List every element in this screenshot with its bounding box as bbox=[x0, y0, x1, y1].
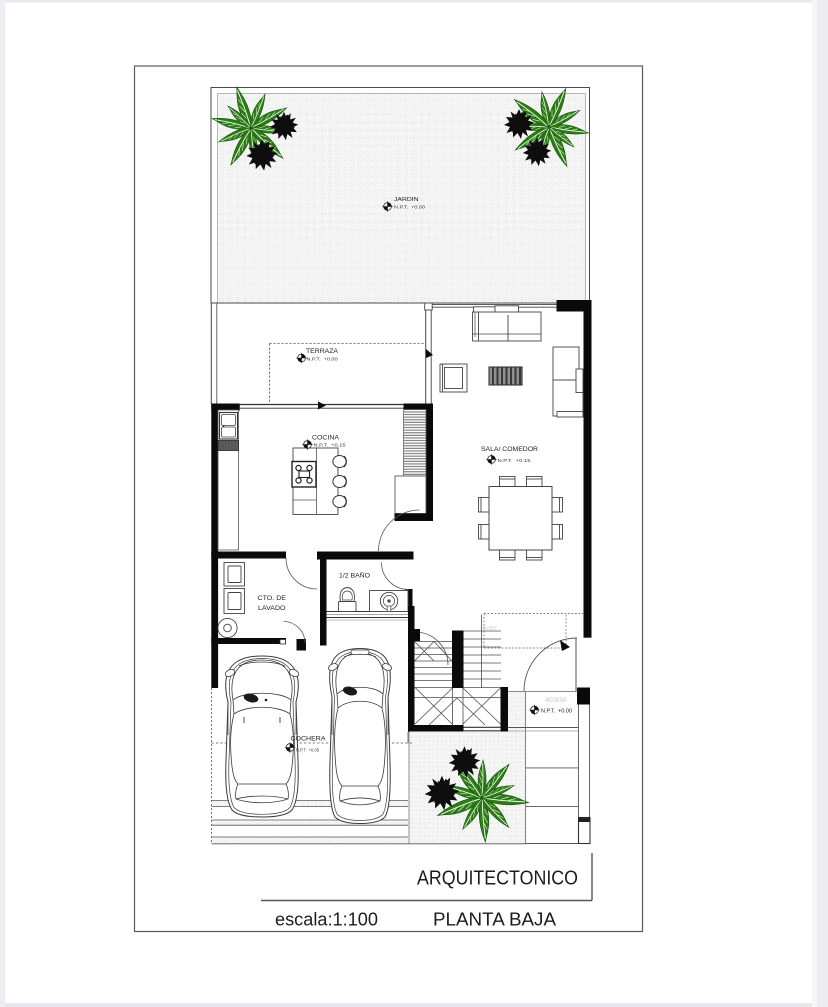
svg-text:COCHERA: COCHERA bbox=[291, 736, 327, 743]
svg-text:N.P.T. +0.05: N.P.T. +0.05 bbox=[296, 747, 319, 753]
svg-text:SALA/ COMEDOR: SALA/ COMEDOR bbox=[481, 446, 538, 453]
svg-text:escala:1:100: escala:1:100 bbox=[275, 910, 378, 930]
svg-text:N.P.T. +0.00: N.P.T. +0.00 bbox=[541, 708, 572, 714]
svg-text:N.P.T. +0.15: N.P.T. +0.15 bbox=[314, 442, 346, 447]
svg-text:CTO. DE: CTO. DE bbox=[258, 595, 287, 602]
svg-text:TERRAZA: TERRAZA bbox=[306, 349, 338, 355]
svg-text:SUBE: SUBE bbox=[483, 626, 497, 631]
svg-text:PLANTA BAJA: PLANTA BAJA bbox=[433, 910, 556, 930]
svg-text:N.P.T. +0.00: N.P.T. +0.00 bbox=[394, 204, 425, 209]
svg-text:1/2 BAÑO: 1/2 BAÑO bbox=[339, 571, 370, 580]
svg-text:COCINA: COCINA bbox=[312, 436, 339, 442]
svg-text:N.P.T. +0.15: N.P.T. +0.15 bbox=[498, 458, 531, 464]
svg-text:ARQUITECTONICO: ARQUITECTONICO bbox=[417, 867, 578, 890]
svg-text:JARDIN: JARDIN bbox=[394, 197, 419, 203]
svg-text:ACCESO: ACCESO bbox=[546, 698, 567, 704]
svg-text:LAVADO: LAVADO bbox=[258, 605, 286, 612]
svg-text:N.P.T. +0.00: N.P.T. +0.00 bbox=[307, 356, 338, 361]
